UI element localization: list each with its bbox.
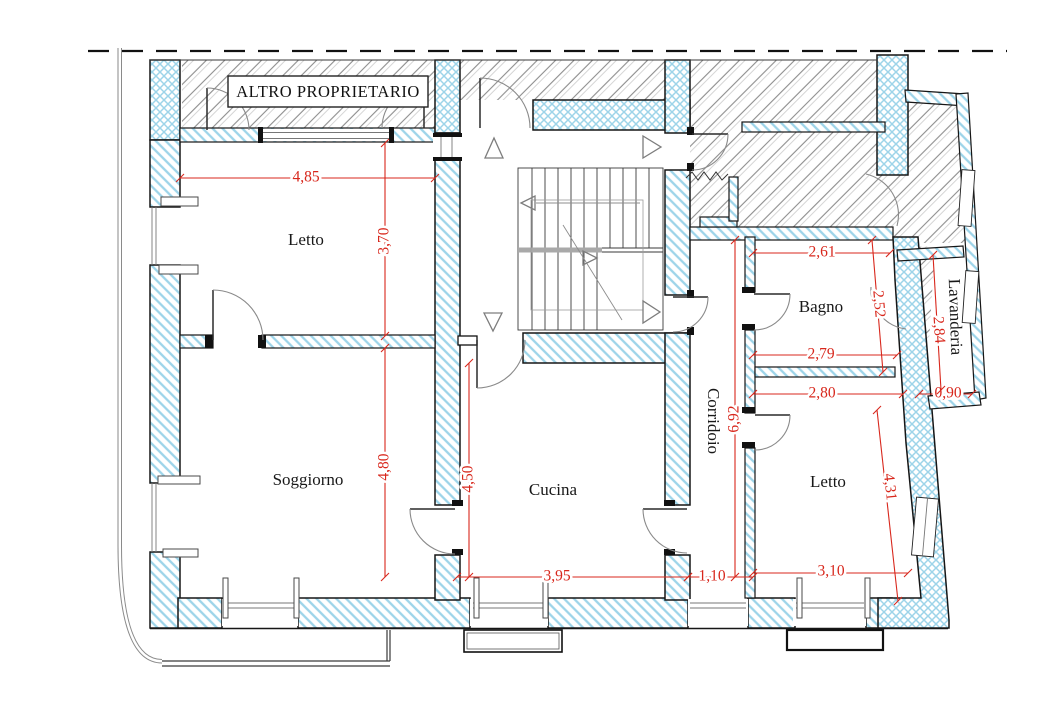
dimension-label-dim-3-70: 3,70 [376,227,393,254]
dimension-label-dim-6-92: 6,92 [726,405,743,432]
dimension-label-dim-2-80: 2,80 [808,385,835,402]
balconies [464,630,883,652]
other-owner-label: ALTRO PROPRIETARIO [236,82,420,101]
room-label-soggiorno: Soggiorno [273,470,344,489]
balcony-long [162,630,390,666]
room-label-cucina: Cucina [529,480,578,499]
dimension-label-dim-3-95: 3,95 [543,568,570,585]
level-marker-icon [484,136,661,331]
room-label-bagno: Bagno [799,297,843,316]
dimension-label-dim-4-50: 4,50 [460,465,477,492]
room-label-lavanderia: Lavanderia [945,278,967,356]
floor-plan-svg: ALTRO PROPRIETARIO 4,853,704,804,503,951… [0,0,1063,715]
room-label-corridoio: Corridoio [704,388,723,454]
dimension-label-dim-4-31: 4,31 [880,473,900,502]
dimension-label-dim-2-52: 2,52 [869,290,888,319]
room-label-letto-1: Letto [288,230,324,249]
floor-plan-page: ALTRO PROPRIETARIO 4,853,704,804,503,951… [0,0,1063,715]
staircase [518,168,663,330]
room-label-letto-2: Letto [810,472,846,491]
dimension-label-dim-2-61: 2,61 [808,244,835,261]
dimension-line [877,410,898,601]
dimension-label-dim-3-10: 3,10 [817,563,844,580]
other-owner-box: ALTRO PROPRIETARIO [228,76,428,107]
dimension-label-dim-1-10: 1,10 [698,568,725,585]
dimension-label-dim-4-85: 4,85 [292,169,319,186]
dimension-label-dim-2-79: 2,79 [807,346,834,363]
dimension-label-dim-4-80: 4,80 [376,453,393,480]
dimension-label-dim-2-84: 2,84 [930,316,949,344]
